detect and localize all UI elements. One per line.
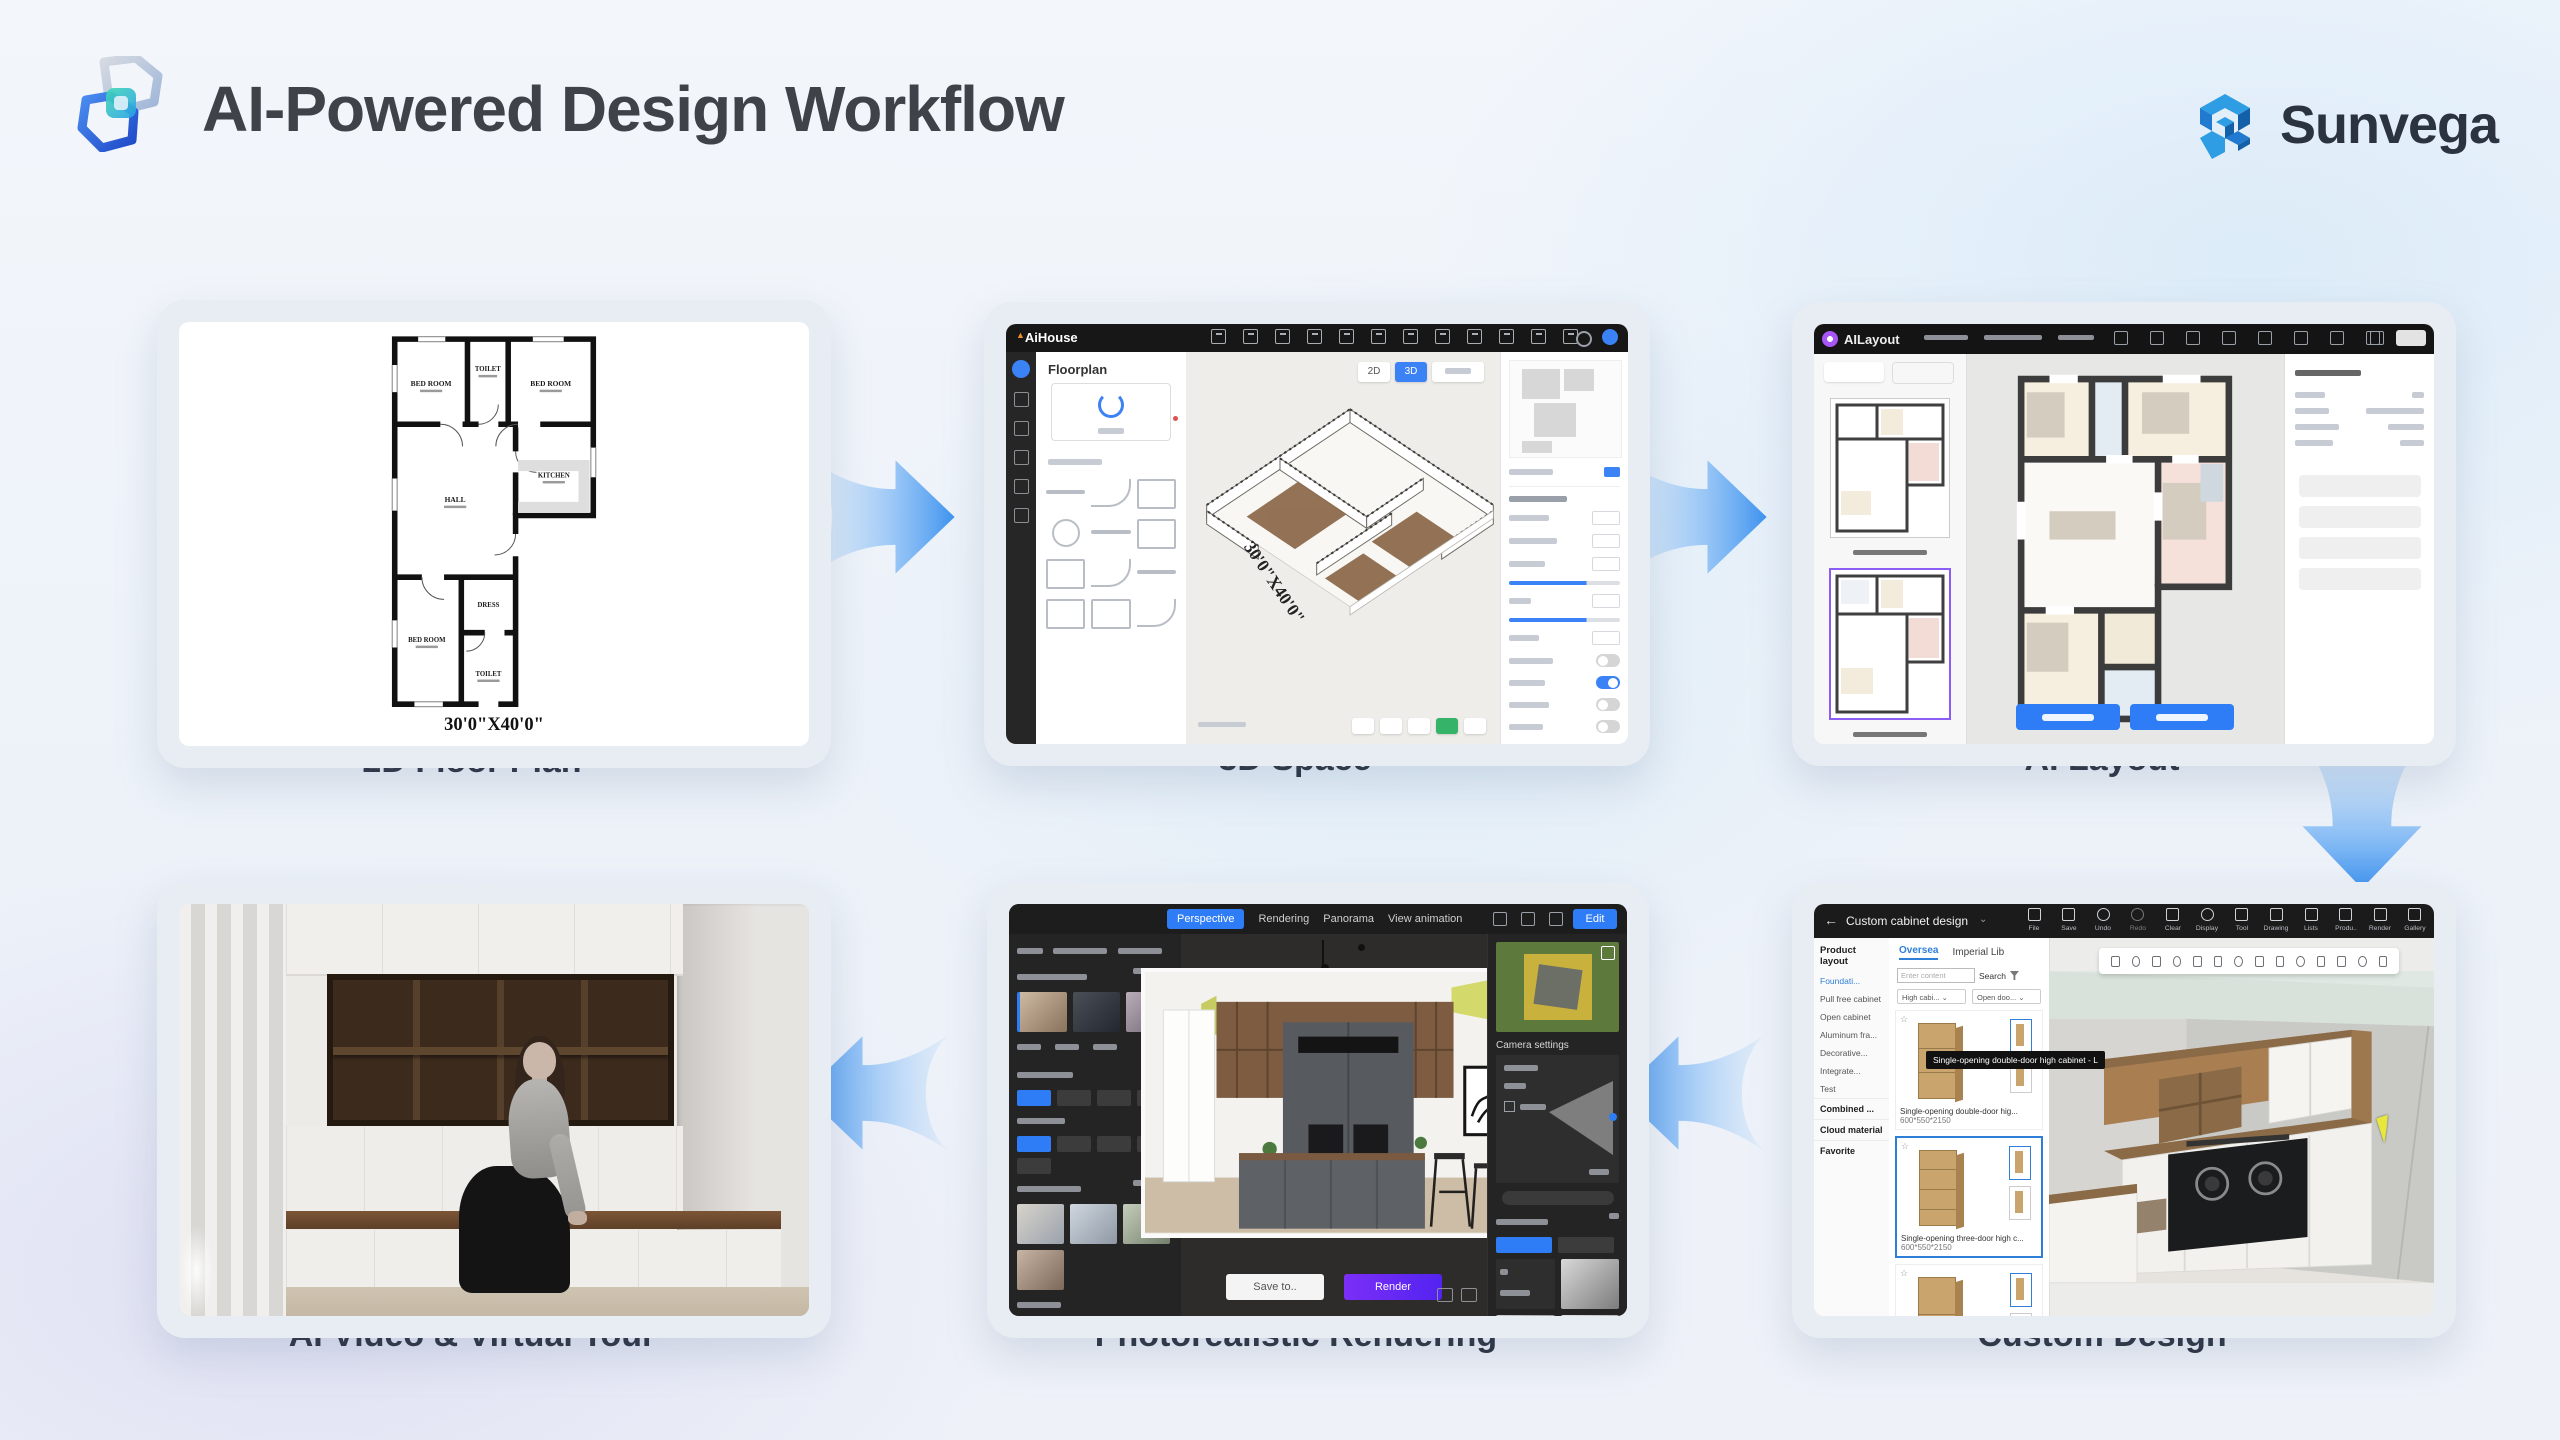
upper-cabinets	[286, 904, 683, 976]
interior-photo	[179, 904, 809, 1316]
result-tab[interactable]	[1558, 1237, 1614, 1253]
settings-icon[interactable]	[1576, 331, 1592, 347]
canvas-hint	[1198, 716, 1246, 734]
view-3d-button[interactable]: 3D	[1395, 362, 1427, 382]
room-label: BED ROOM	[411, 379, 452, 388]
nav-icon[interactable]	[1014, 479, 1029, 494]
slider[interactable]	[1509, 581, 1620, 585]
panel-ai-layout[interactable]: AILayout	[1792, 302, 2456, 766]
toggle-off[interactable]	[1596, 654, 1620, 667]
camera-position-dot[interactable]	[1609, 1113, 1617, 1121]
draw-icon	[1098, 392, 1124, 418]
panel-action-button[interactable]	[2299, 537, 2421, 559]
toggle-off[interactable]	[1596, 720, 1620, 733]
aihouse-logo: ▲AiHouse	[1016, 330, 1078, 345]
tool-icon[interactable]	[2317, 956, 2326, 967]
aihouse-properties-panel	[1500, 352, 1628, 744]
panel-action-button[interactable]	[2299, 506, 2421, 528]
chip[interactable]	[1017, 1158, 1051, 1174]
item-name: Single-opening double-door hig...	[1900, 1107, 2038, 1116]
panel-custom-design[interactable]: ← Custom cabinet design ⌄ File Save Undo…	[1792, 882, 2456, 1338]
room-label: BED ROOM	[530, 379, 571, 388]
component-thumb[interactable]	[1046, 559, 1085, 589]
aihouse-left-rail[interactable]	[1006, 352, 1036, 744]
tool-icon[interactable]	[2296, 956, 2305, 967]
ailayout-info-panel	[2284, 354, 2434, 744]
filter-dropdown-1[interactable]: High cabi... ⌄	[1897, 989, 1966, 1004]
toolbar-icon[interactable]	[1339, 329, 1354, 344]
aihouse-titlebar: ▲AiHouse	[1006, 324, 1628, 352]
tool-icon[interactable]	[1437, 1288, 1453, 1302]
tool-icon[interactable]	[2234, 956, 2243, 967]
floor-badge[interactable]	[1604, 467, 1620, 477]
toolbar-icon[interactable]	[1531, 329, 1546, 344]
tool-icon[interactable]	[2358, 956, 2367, 967]
scheme-caption	[1814, 726, 1966, 744]
toolbar-lists[interactable]: Lists	[2296, 908, 2326, 932]
panel-title: Floorplan	[1048, 362, 1186, 377]
door-variant[interactable]	[2009, 1186, 2031, 1220]
value-input[interactable]	[1592, 534, 1620, 548]
favorite-star-icon[interactable]: ☆	[1900, 1268, 1908, 1279]
value-input[interactable]	[1592, 557, 1620, 571]
toggle-off[interactable]	[1596, 698, 1620, 711]
toolbar-icon[interactable]	[1549, 912, 1563, 926]
category-item[interactable]: Open cabinet	[1814, 1008, 1889, 1026]
toolbar-clear[interactable]: Clear	[2158, 908, 2188, 932]
category-section[interactable]: Cloud material	[1814, 1119, 1889, 1140]
chip[interactable]	[1057, 1136, 1091, 1152]
panel-2d-floor-plan[interactable]: BED ROOM TOILET BED ROOM HALL KITCHEN BE…	[157, 300, 831, 768]
room-label: DRESS	[478, 602, 500, 609]
floor-plan-drawing: BED ROOM TOILET BED ROOM HALL KITCHEN BE…	[386, 330, 602, 737]
slider[interactable]	[1509, 618, 1620, 622]
avatar[interactable]	[1602, 329, 1618, 345]
toolbar-icon[interactable]	[2330, 331, 2344, 345]
component-grid[interactable]	[1036, 471, 1186, 637]
kitchen-sketch	[2049, 938, 2434, 1316]
door-variant-selected[interactable]	[2010, 1273, 2032, 1307]
aihouse-3d-canvas[interactable]: 30'0"X40'0" 2D 3D	[1186, 352, 1500, 744]
canvas-quick-tools[interactable]	[1352, 718, 1486, 734]
component-thumb[interactable]	[1091, 559, 1130, 587]
item-size: 600*550*2150	[1900, 1116, 2038, 1125]
panel-action-button[interactable]	[2299, 568, 2421, 590]
toolbar-icon[interactable]	[1211, 329, 1226, 344]
titlebar-right-icons[interactable]	[2370, 331, 2384, 345]
toolbar-icon[interactable]	[2370, 331, 2384, 345]
panel-3d-space[interactable]: ▲AiHouse Floorplan	[984, 302, 1650, 766]
notification-dot	[1173, 416, 1178, 421]
toolbar-render[interactable]: Render	[2365, 908, 2395, 932]
window-light	[179, 1089, 267, 1316]
filter-icon[interactable]	[2010, 971, 2019, 980]
toolbar-icon[interactable]	[1493, 912, 1507, 926]
plan-dimension: 30'0"X40'0"	[444, 715, 544, 735]
tab-oversea[interactable]: Oversea	[1899, 945, 1938, 960]
woman-hand	[568, 1211, 587, 1225]
sunvega-logo-icon	[2186, 86, 2264, 164]
toolbar-icon[interactable]	[1275, 329, 1290, 344]
render-actions: Save to.. Render	[1226, 1274, 1442, 1300]
chip-selected[interactable]	[1017, 1090, 1051, 1106]
render-right-sidebar: Camera settings	[1487, 934, 1627, 1316]
search-button[interactable]: Search	[1979, 971, 2006, 981]
titlebar-button[interactable]	[2396, 330, 2426, 346]
tool-icon[interactable]	[2111, 956, 2120, 967]
cabinet-item-card[interactable]: ☆ Single-opening double-door hig... 600*…	[1895, 1010, 2043, 1130]
brand-lockup: Sunvega	[2186, 86, 2498, 164]
nav-icon[interactable]	[1014, 421, 1029, 436]
colored-floor-plan	[2012, 370, 2239, 729]
ailayout-primary-button[interactable]	[2016, 704, 2120, 730]
style-thumb[interactable]	[1017, 1250, 1064, 1290]
toolbar-icon[interactable]	[1521, 912, 1535, 926]
result-meta	[1496, 1259, 1555, 1309]
cabinet-toolbar: File Save Undo Redo Clear Display Tool D…	[2019, 908, 2430, 932]
scheme-caption	[1814, 544, 1966, 562]
toggle-on[interactable]	[1596, 676, 1620, 689]
room-label: TOILET	[475, 366, 501, 373]
toolbar-icon[interactable]	[1403, 329, 1418, 344]
nav-icon[interactable]	[1014, 508, 1029, 523]
canvas-tool[interactable]	[1436, 718, 1458, 734]
render-button[interactable]: Render	[1344, 1274, 1442, 1300]
chip[interactable]	[1097, 1136, 1131, 1152]
component-thumb[interactable]	[1091, 599, 1130, 629]
cabinet-3d-canvas[interactable]	[2049, 938, 2434, 1316]
tool-icon[interactable]	[2152, 956, 2161, 967]
brand-name: Sunvega	[2280, 94, 2498, 156]
scheme-tabs[interactable]	[1814, 354, 1966, 392]
render-viewport[interactable]: Save to.. Render	[1181, 934, 1487, 1316]
toolbar-gallery[interactable]: Gallery	[2400, 908, 2430, 932]
toolbar-icon[interactable]	[2258, 331, 2272, 345]
canvas-tool[interactable]	[1464, 718, 1486, 734]
tool-icon[interactable]	[2255, 956, 2264, 967]
toolbar-file[interactable]: File	[2019, 908, 2049, 932]
woman-head	[523, 1042, 556, 1079]
toolbar-icon[interactable]	[1243, 329, 1258, 344]
nav-icon-active[interactable]	[1012, 360, 1030, 378]
toolbar-icon[interactable]	[2186, 331, 2200, 345]
company-logo-icon	[74, 56, 166, 152]
cabinet-item-card[interactable]: ☆ Single-opening single-door high c... 6…	[1895, 1264, 2043, 1316]
render-preview-frame	[1141, 968, 1527, 1238]
panel-photorealistic-rendering[interactable]: Perspective Rendering Panorama View anim…	[987, 882, 1649, 1338]
chip-selected[interactable]	[1017, 1136, 1051, 1152]
save-button[interactable]: Save to..	[1226, 1274, 1324, 1300]
room-label: TOILET	[476, 671, 502, 678]
camera-settings-label: Camera settings	[1496, 1040, 1619, 1051]
tool-icon[interactable]	[2173, 956, 2182, 967]
toolbar-icon[interactable]	[2294, 331, 2308, 345]
viewport-corner-tools[interactable]	[1437, 1288, 1477, 1302]
search-input[interactable]	[1897, 968, 1975, 983]
pendant-lamp	[1358, 944, 1365, 951]
wood-shelf-niche	[327, 974, 674, 1126]
back-arrow-icon[interactable]: ←	[1824, 912, 1838, 928]
draw-tool-card[interactable]	[1051, 383, 1171, 441]
tool-icon[interactable]	[2276, 956, 2285, 967]
nav-icon[interactable]	[1014, 450, 1029, 465]
tab-inactive[interactable]	[1892, 362, 1954, 384]
render-app-tabs: Perspective Rendering Panorama View anim…	[1009, 904, 1627, 934]
component-thumb[interactable]	[1091, 530, 1130, 534]
category-item[interactable]: Pull free cabinet	[1814, 990, 1889, 1008]
panel-action-button[interactable]	[2299, 475, 2421, 497]
style-thumb[interactable]	[1070, 1204, 1117, 1244]
category-section[interactable]: Combined ...	[1814, 1098, 1889, 1119]
result-thumb[interactable]	[1561, 1259, 1620, 1309]
top-right-icons[interactable]	[1493, 912, 1563, 926]
scheme-thumbnail[interactable]	[1830, 398, 1950, 538]
result-tabs[interactable]	[1496, 1237, 1619, 1253]
canvas-secondary-toolbar	[2099, 948, 2399, 974]
chip[interactable]	[1097, 1090, 1131, 1106]
aihouse-library-panel: Floorplan	[1036, 352, 1187, 744]
toolbar-icon[interactable]	[1371, 329, 1386, 344]
tool-icon[interactable]	[2193, 956, 2202, 967]
sidebar-title: Product layout	[1814, 938, 1889, 972]
tool-icon[interactable]	[2214, 956, 2223, 967]
tab-rendering[interactable]: Rendering	[1258, 913, 1309, 925]
view-2d-button[interactable]: 2D	[1358, 362, 1390, 382]
category-item[interactable]: Integrate...	[1814, 1062, 1889, 1080]
render-app-screenshot: Perspective Rendering Panorama View anim…	[1009, 904, 1627, 1316]
component-thumb[interactable]	[1091, 479, 1130, 507]
tab-active[interactable]	[1824, 362, 1884, 382]
panel-ai-video[interactable]	[157, 882, 831, 1338]
toolbar-icon[interactable]	[1499, 329, 1514, 344]
titlebar-breadcrumbs	[1924, 335, 2094, 340]
toolbar-icon[interactable]	[1467, 329, 1482, 344]
edit-button[interactable]: Edit	[1573, 909, 1617, 929]
component-thumb[interactable]	[1137, 570, 1176, 574]
toolbar-drawing[interactable]: Drawing	[2261, 908, 2291, 932]
isometric-house: 30'0"X40'0"	[1200, 400, 1500, 633]
ai-video-still	[179, 904, 809, 1316]
wide-chip-button[interactable]	[1502, 1191, 1614, 1205]
ailayout-toolbar[interactable]	[2114, 331, 2380, 345]
workflow-infographic: AI-Powered Design Workflow Sunvega 2D Fl…	[0, 0, 2560, 1440]
category-item[interactable]: Test	[1814, 1080, 1889, 1098]
toolbar-produce[interactable]: Produ..	[2331, 908, 2361, 932]
cabinet-item-card-selected[interactable]: ☆ Single-opening three-door high c... 60…	[1895, 1136, 2043, 1258]
door-variant-selected[interactable]	[2010, 1019, 2032, 1053]
ailayout-canvas[interactable]	[1966, 354, 2284, 744]
tab-imperial-lib[interactable]: Imperial Lib	[1952, 947, 2004, 958]
toolbar-icon[interactable]	[2114, 331, 2128, 345]
render-results[interactable]	[1496, 1259, 1619, 1316]
nav-icon[interactable]	[1014, 392, 1029, 407]
checkbox[interactable]	[1504, 1101, 1515, 1112]
camera-settings-panel[interactable]	[1496, 1055, 1619, 1183]
tab-perspective[interactable]: Perspective	[1167, 909, 1244, 929]
view-toggle[interactable]: 2D 3D	[1358, 362, 1484, 382]
door-variant-selected[interactable]	[2009, 1146, 2031, 1180]
chip[interactable]	[1057, 1090, 1091, 1106]
component-thumb[interactable]	[1137, 519, 1176, 549]
toolbar-icon[interactable]	[1435, 329, 1450, 344]
result-thumb[interactable]	[1561, 1315, 1620, 1316]
toolbar-redo[interactable]: Redo	[2123, 908, 2153, 932]
woman-skirt	[459, 1166, 569, 1294]
room-label: BED ROOM	[408, 637, 446, 644]
ailayout-action-buttons	[2016, 704, 2234, 730]
tool-icon[interactable]	[1461, 1288, 1477, 1302]
cabinet-titlebar: ← Custom cabinet design ⌄ File Save Undo…	[1814, 904, 2434, 938]
cabinet-app-screenshot: ← Custom cabinet design ⌄ File Save Undo…	[1814, 904, 2434, 1316]
room-label: HALL	[445, 495, 466, 504]
floorplan-thumbnail[interactable]	[1509, 360, 1622, 458]
value-input[interactable]	[1592, 511, 1620, 525]
template-thumb[interactable]	[1017, 992, 1067, 1032]
ailayout-secondary-button[interactable]	[2130, 704, 2234, 730]
expand-icon[interactable]	[1601, 946, 1615, 960]
door-variant[interactable]	[2010, 1313, 2032, 1316]
page-title: AI-Powered Design Workflow	[202, 72, 1064, 146]
ailayout-titlebar: AILayout	[1814, 324, 2434, 354]
tool-icon[interactable]	[2379, 956, 2388, 967]
toolbar-icon[interactable]	[1307, 329, 1322, 344]
category-section[interactable]: Favorite	[1814, 1140, 1889, 1161]
result-tab-selected[interactable]	[1496, 1237, 1552, 1253]
toolbar-undo[interactable]: Undo	[2088, 908, 2118, 932]
toolbar-icon[interactable]	[2150, 331, 2164, 345]
pendant-stem	[1322, 940, 1324, 966]
view-roam-button[interactable]	[1432, 362, 1484, 382]
aerial-view-thumbnail[interactable]	[1496, 942, 1619, 1032]
ailayout-app-name: AILayout	[1844, 332, 1900, 347]
value-input[interactable]	[1592, 631, 1620, 645]
toolbar-tool[interactable]: Tool	[2227, 908, 2257, 932]
floor-plan-screenshot: BED ROOM TOILET BED ROOM HALL KITCHEN BE…	[179, 322, 809, 746]
cabinet-tooltip: Single-opening double-door high cabinet …	[1926, 1051, 2105, 1069]
cabinet-thumb	[1918, 1277, 1956, 1316]
item-size: 600*550*2150	[1901, 1243, 2037, 1252]
aihouse-screenshot: ▲AiHouse Floorplan	[1006, 324, 1628, 744]
favorite-star-icon[interactable]: ☆	[1901, 1141, 1909, 1152]
kitchen-render	[1145, 972, 1523, 1234]
tool-icon[interactable]	[2132, 956, 2141, 967]
cabinet-thumb	[1919, 1150, 1957, 1226]
result-thumb[interactable]	[1496, 1315, 1555, 1316]
tab-panorama[interactable]: Panorama	[1323, 913, 1374, 925]
cabinet-category-sidebar: Product layout Foundati... Pull free cab…	[1814, 938, 1890, 1316]
component-thumb[interactable]	[1046, 599, 1085, 629]
component-thumb[interactable]	[1137, 479, 1176, 509]
toolbar-icon[interactable]	[2222, 331, 2236, 345]
style-thumb[interactable]	[1017, 1204, 1064, 1244]
cabinet-library-panel: Oversea Imperial Lib Search High cabi...…	[1889, 938, 2050, 1316]
scheme-thumbnail-selected[interactable]	[1829, 568, 1951, 720]
canvas-tool[interactable]	[1408, 718, 1430, 734]
category-item-active[interactable]: Foundati...	[1814, 972, 1889, 990]
favorite-star-icon[interactable]: ☆	[1900, 1014, 1908, 1025]
ailayout-screenshot: AILayout	[1814, 324, 2434, 744]
item-name: Single-opening three-door high c...	[1901, 1234, 2037, 1243]
component-thumb[interactable]	[1137, 599, 1176, 627]
template-thumb[interactable]	[1073, 992, 1120, 1032]
toolbar-save[interactable]: Save	[2054, 908, 2084, 932]
camera-fov-cone	[1549, 1081, 1613, 1155]
filter-dropdown-2[interactable]: Open doo... ⌄	[1972, 989, 2041, 1004]
aihouse-toolbar[interactable]	[1211, 329, 1578, 344]
toolbar-display[interactable]: Display	[2192, 908, 2222, 932]
ailayout-scheme-list	[1814, 354, 1967, 744]
value-input[interactable]	[1592, 594, 1620, 608]
canvas-tool[interactable]	[1352, 718, 1374, 734]
ailayout-logo-icon	[1822, 331, 1838, 347]
chevron-down-icon[interactable]: ⌄	[1979, 914, 1987, 925]
canvas-tool[interactable]	[1380, 718, 1402, 734]
component-thumb[interactable]	[1046, 490, 1085, 494]
tool-icon[interactable]	[2337, 956, 2346, 967]
tab-view-animation[interactable]: View animation	[1388, 913, 1462, 925]
component-thumb[interactable]	[1052, 519, 1080, 547]
category-item[interactable]: Decorative...	[1814, 1044, 1889, 1062]
room-label: KITCHEN	[538, 472, 570, 479]
category-item[interactable]: Aluminum fra...	[1814, 1026, 1889, 1044]
document-title[interactable]: Custom cabinet design	[1846, 914, 1968, 928]
